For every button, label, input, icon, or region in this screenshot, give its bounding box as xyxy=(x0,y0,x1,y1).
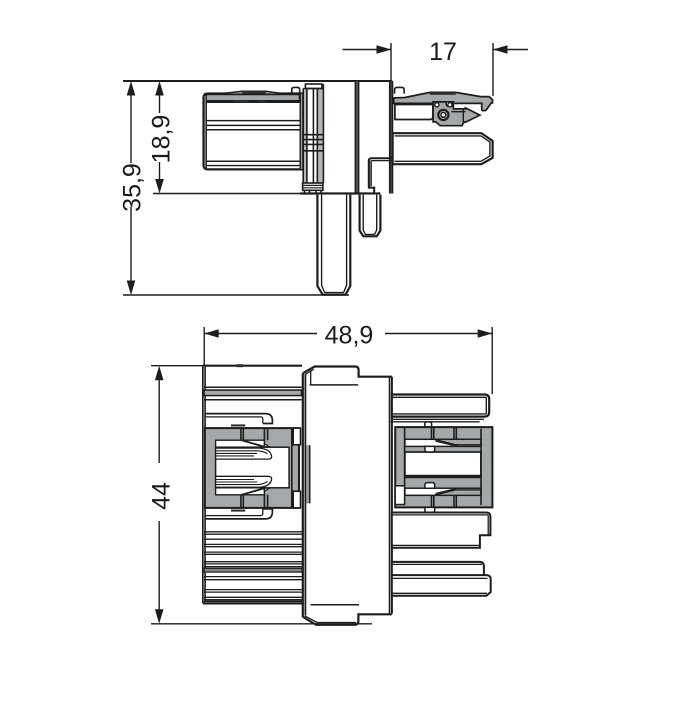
svg-text:44: 44 xyxy=(148,482,176,510)
svg-text:17: 17 xyxy=(429,38,457,66)
svg-text:18,9: 18,9 xyxy=(147,115,175,164)
svg-text:35,9: 35,9 xyxy=(118,163,146,212)
svg-text:48,9: 48,9 xyxy=(325,322,374,350)
